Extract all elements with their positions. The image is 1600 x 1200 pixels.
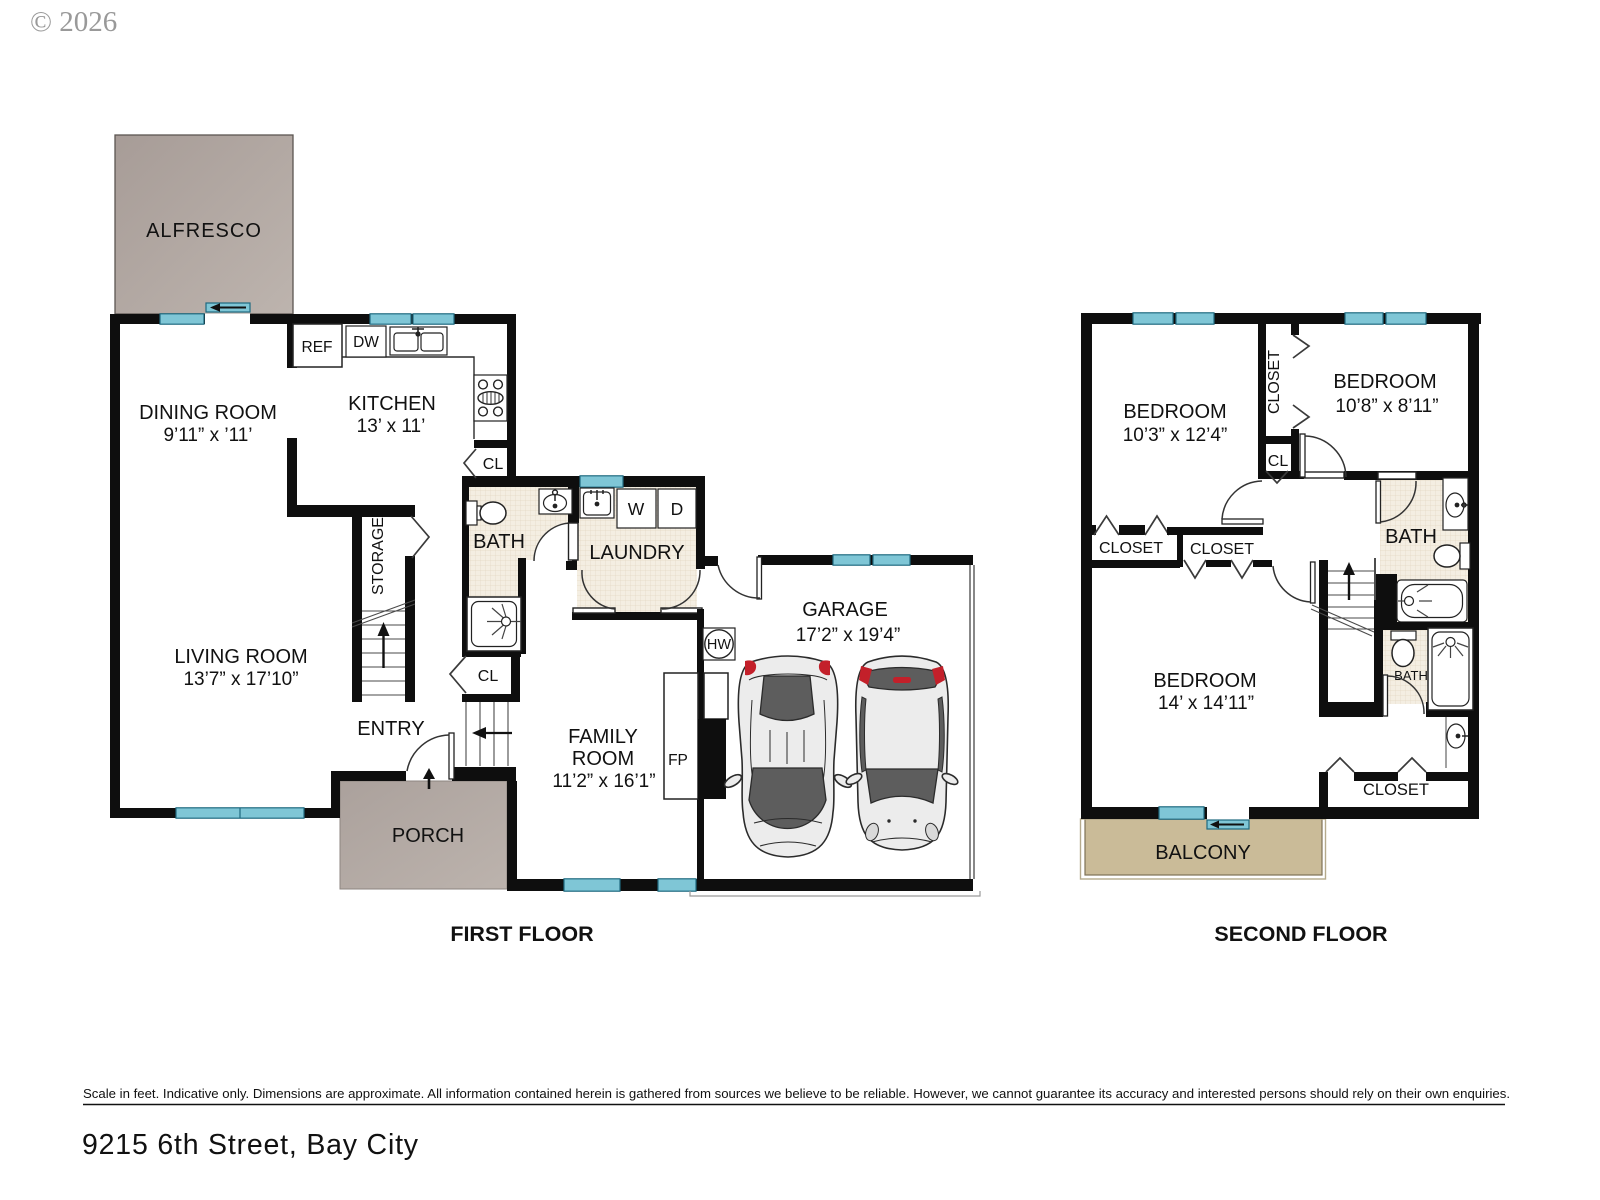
svg-text:CLOSET: CLOSET bbox=[1190, 541, 1254, 558]
svg-text:Scale in feet. Indicative only: Scale in feet. Indicative only. Dimensio… bbox=[83, 1086, 1510, 1101]
svg-text:13’7” x 17’10”: 13’7” x 17’10” bbox=[183, 669, 298, 690]
svg-text:17’2” x 19’4”: 17’2” x 19’4” bbox=[796, 625, 901, 646]
svg-text:13’ x 11’: 13’ x 11’ bbox=[357, 416, 426, 437]
svg-text:11’2” x 16’1”: 11’2” x 16’1” bbox=[552, 771, 655, 792]
svg-text:9’11” x ’11’: 9’11” x ’11’ bbox=[163, 425, 252, 446]
svg-text:CL: CL bbox=[478, 668, 499, 685]
svg-text:KITCHEN: KITCHEN bbox=[348, 393, 436, 415]
svg-text:BATH: BATH bbox=[473, 531, 525, 553]
svg-text:FIRST FLOOR: FIRST FLOOR bbox=[450, 922, 594, 946]
svg-text:BEDROOM: BEDROOM bbox=[1333, 371, 1436, 393]
svg-text:GARAGE: GARAGE bbox=[802, 599, 888, 621]
svg-text:9215 6th Street, Bay City: 9215 6th Street, Bay City bbox=[82, 1129, 419, 1161]
svg-text:SECOND FLOOR: SECOND FLOOR bbox=[1214, 922, 1388, 946]
svg-text:D: D bbox=[671, 499, 684, 519]
svg-text:REF: REF bbox=[302, 339, 333, 356]
svg-text:DW: DW bbox=[353, 334, 379, 351]
svg-text:ALFRESCO: ALFRESCO bbox=[146, 220, 262, 242]
svg-text:PORCH: PORCH bbox=[392, 825, 464, 847]
svg-text:BEDROOM: BEDROOM bbox=[1123, 401, 1226, 423]
svg-text:STORAGE: STORAGE bbox=[370, 517, 387, 595]
svg-text:BEDROOM: BEDROOM bbox=[1153, 670, 1256, 692]
svg-text:FAMILY: FAMILY bbox=[568, 726, 638, 748]
svg-text:14’ x 14’11”: 14’ x 14’11” bbox=[1158, 693, 1254, 714]
svg-text:CLOSET: CLOSET bbox=[1099, 540, 1163, 557]
svg-text:CL: CL bbox=[483, 456, 504, 473]
svg-text:FP: FP bbox=[668, 752, 688, 769]
svg-text:BALCONY: BALCONY bbox=[1155, 842, 1251, 864]
svg-text:BATH: BATH bbox=[1385, 526, 1437, 548]
svg-text:HW: HW bbox=[707, 637, 731, 653]
svg-text:W: W bbox=[628, 499, 645, 519]
svg-text:ENTRY: ENTRY bbox=[357, 718, 424, 740]
svg-text:10’8” x 8’11”: 10’8” x 8’11” bbox=[1335, 396, 1438, 417]
svg-text:ROOM: ROOM bbox=[572, 748, 634, 770]
svg-text:BATH: BATH bbox=[1394, 668, 1428, 683]
svg-text:10’3” x 12’4”: 10’3” x 12’4” bbox=[1123, 425, 1228, 446]
svg-text:LIVING ROOM: LIVING ROOM bbox=[174, 646, 307, 668]
svg-text:CL: CL bbox=[1268, 453, 1289, 470]
svg-text:CLOSET: CLOSET bbox=[1266, 350, 1283, 414]
svg-text:CLOSET: CLOSET bbox=[1363, 781, 1429, 799]
svg-text:LAUNDRY: LAUNDRY bbox=[589, 542, 684, 564]
svg-text:© 2026: © 2026 bbox=[30, 6, 117, 38]
svg-text:DINING ROOM: DINING ROOM bbox=[139, 402, 277, 424]
